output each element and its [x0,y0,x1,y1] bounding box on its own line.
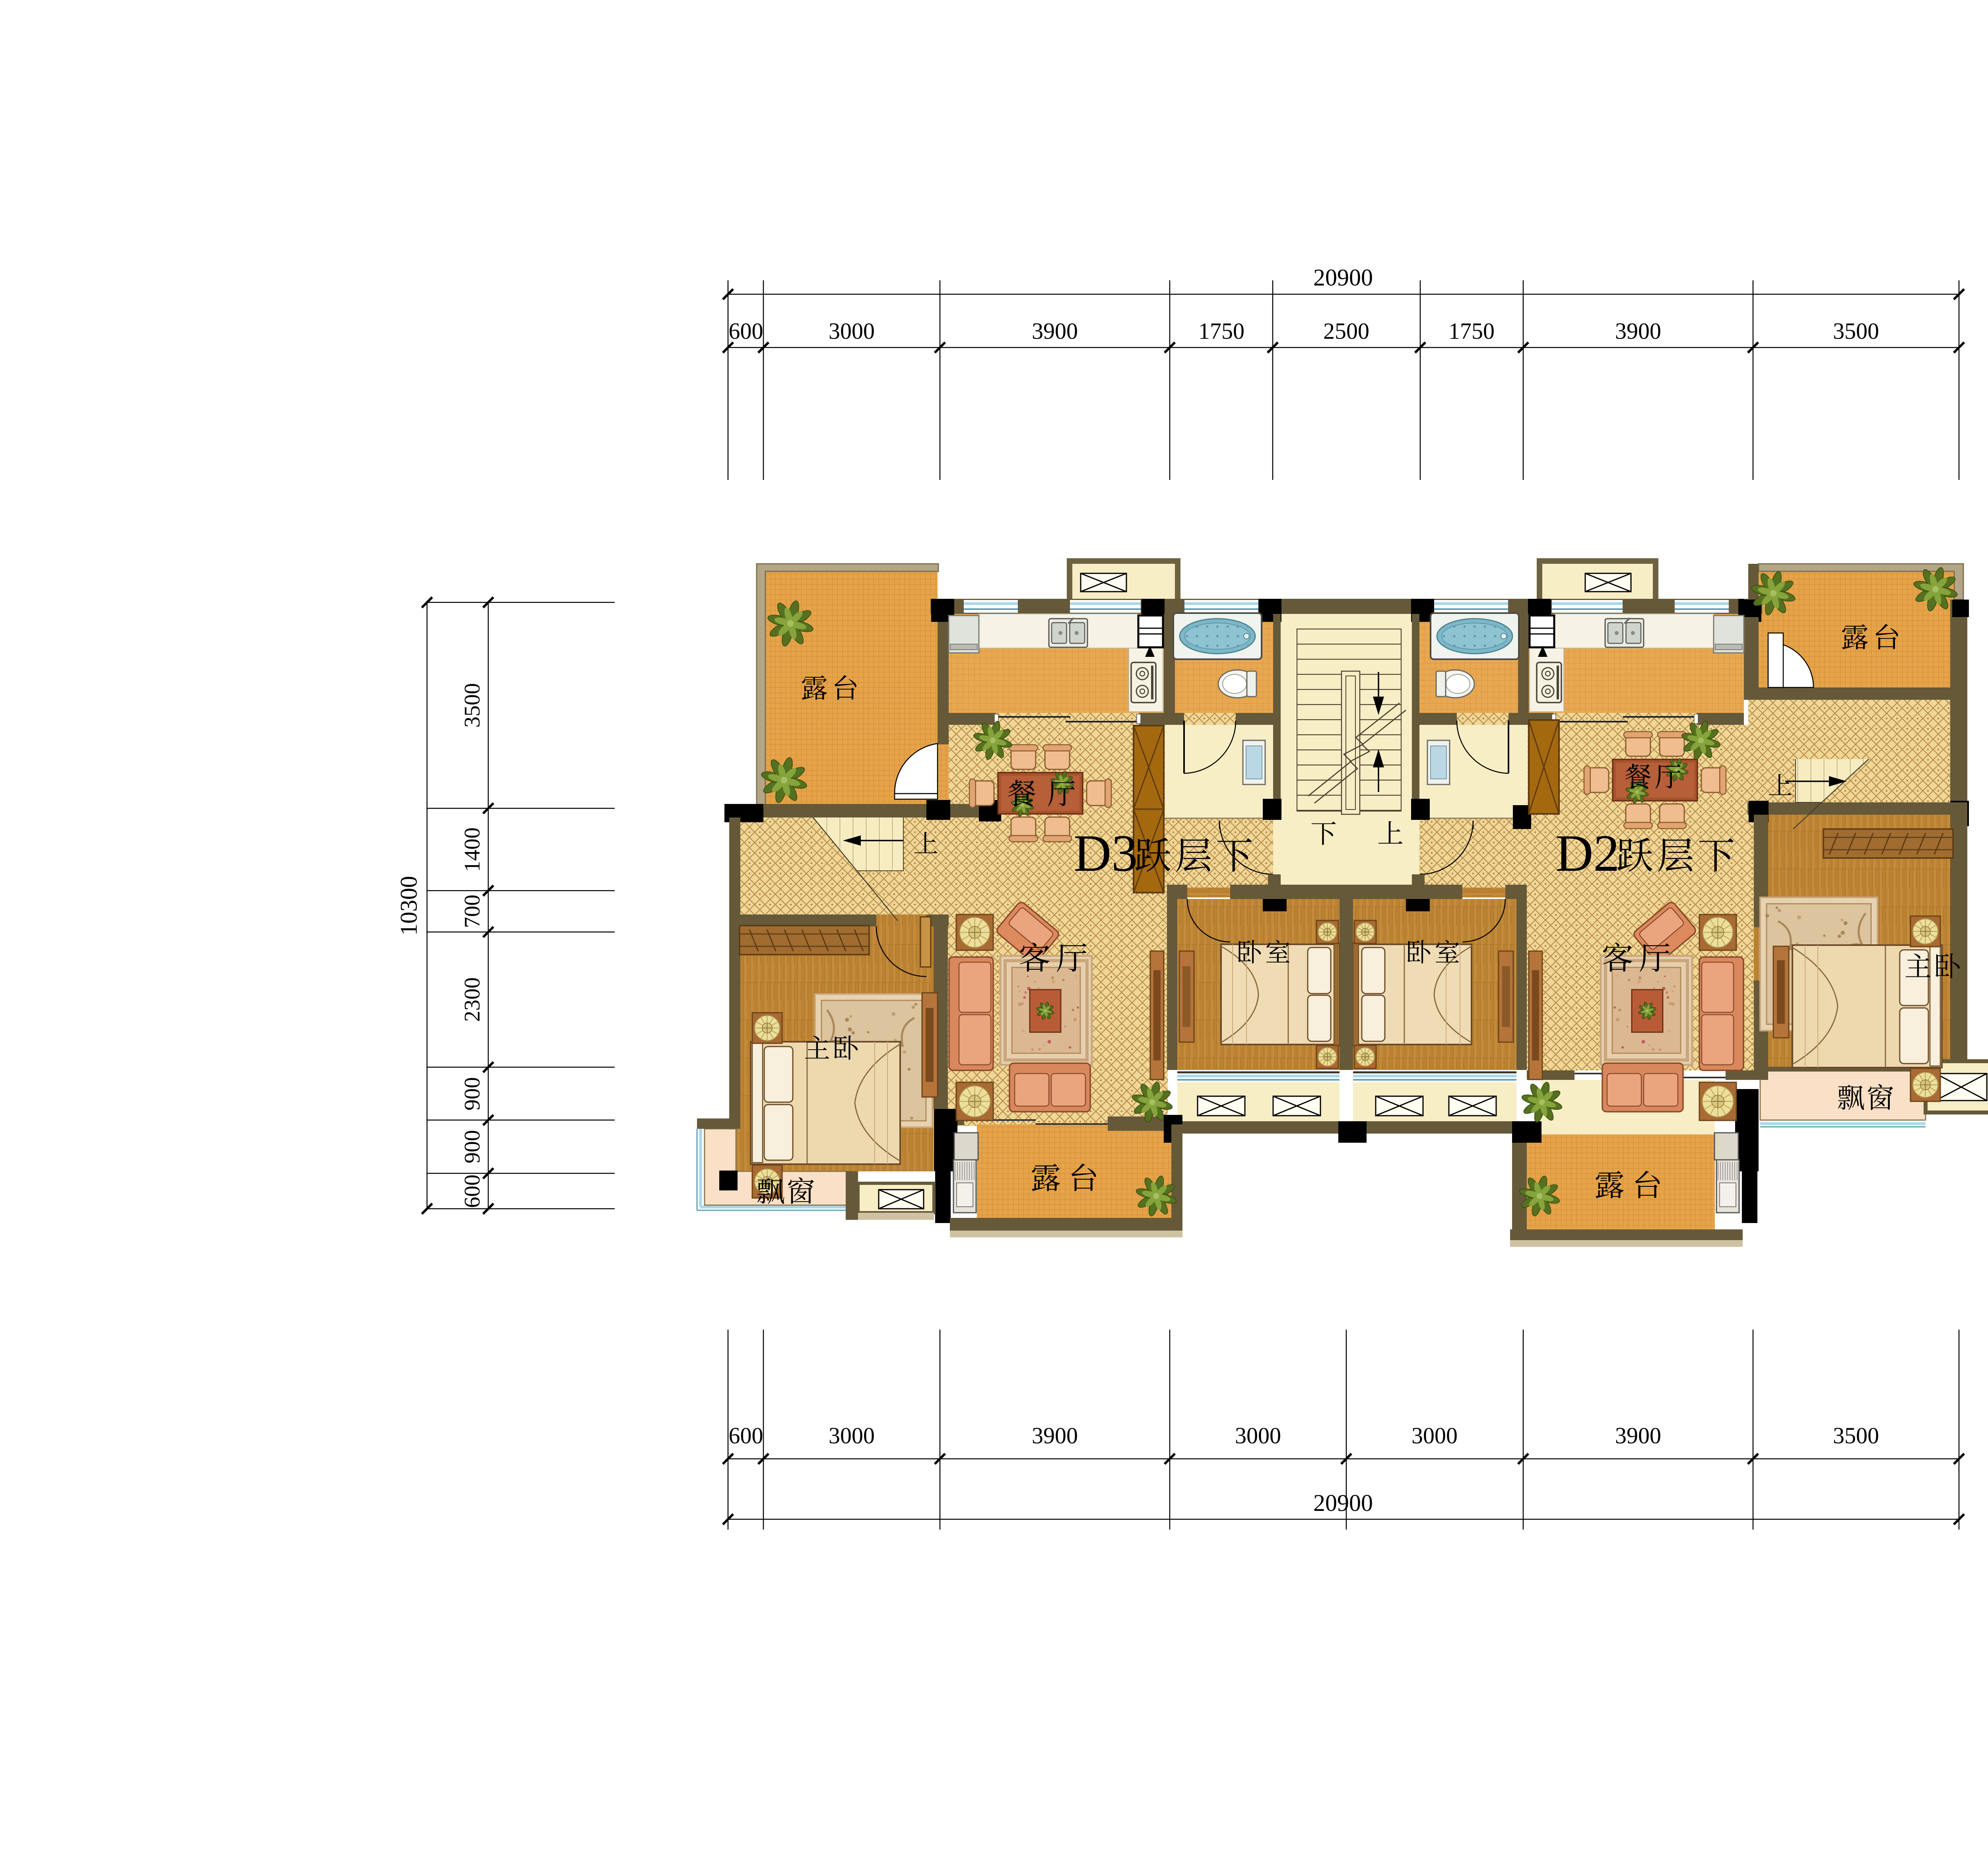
svg-text:20900: 20900 [1313,264,1373,291]
svg-text:2300: 2300 [460,977,485,1022]
svg-text:3500: 3500 [1833,318,1879,344]
svg-text:600: 600 [460,1175,485,1208]
svg-text:3900: 3900 [1615,318,1661,344]
svg-text:3900: 3900 [1032,1423,1078,1448]
svg-text:3000: 3000 [829,318,875,344]
svg-text:20900: 20900 [1313,1490,1373,1516]
svg-text:900: 900 [460,1130,485,1163]
svg-text:2500: 2500 [1323,318,1369,344]
svg-text:1400: 1400 [460,827,485,872]
svg-text:3500: 3500 [1833,1423,1879,1448]
svg-text:600: 600 [729,1423,763,1448]
svg-text:3900: 3900 [1615,1423,1661,1448]
svg-text:900: 900 [460,1077,485,1111]
svg-text:700: 700 [460,895,485,928]
svg-text:3900: 3900 [1032,318,1078,344]
svg-text:1750: 1750 [1448,318,1495,344]
svg-text:3000: 3000 [829,1423,875,1448]
svg-text:1750: 1750 [1198,318,1244,344]
svg-text:3000: 3000 [1235,1423,1281,1448]
svg-text:10300: 10300 [396,876,422,936]
svg-text:D2: D2 [1555,824,1619,882]
svg-text:3000: 3000 [1411,1423,1458,1448]
svg-text:D3: D3 [1074,824,1138,882]
svg-text:3500: 3500 [460,683,485,728]
svg-text:600: 600 [729,318,763,344]
